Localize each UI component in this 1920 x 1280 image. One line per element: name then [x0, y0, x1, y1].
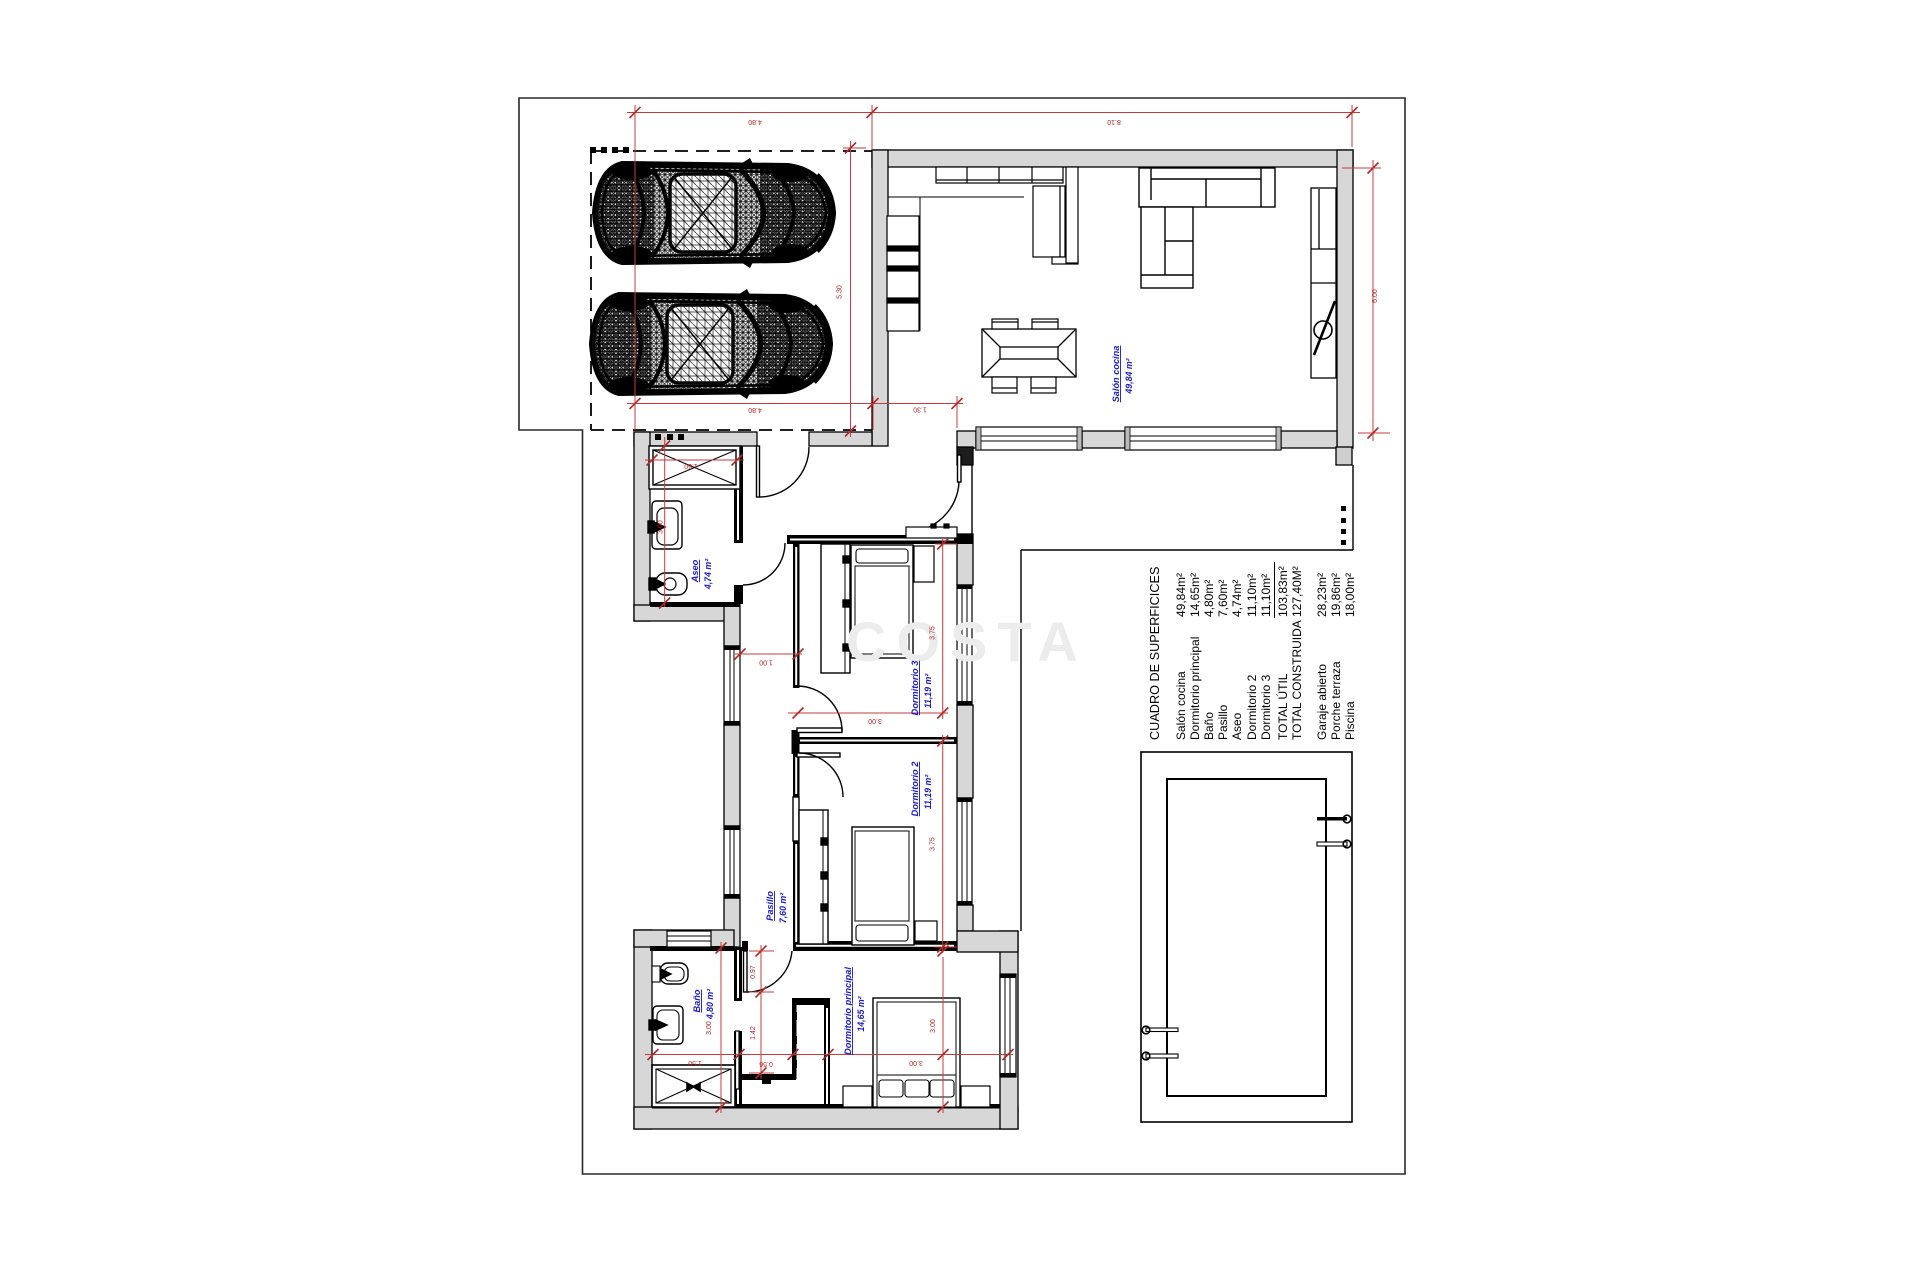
svg-text:7,60m²: 7,60m²: [1216, 580, 1230, 617]
svg-text:14,65m²: 14,65m²: [1188, 573, 1202, 617]
svg-text:11,19 m²: 11,19 m²: [923, 774, 933, 810]
svg-text:TOTAL ÚTIL: TOTAL ÚTIL: [1275, 673, 1290, 740]
svg-text:6.00: 6.00: [1372, 289, 1379, 303]
svg-text:4,80 m²: 4,80 m²: [705, 988, 715, 1020]
svg-text:11,10m²: 11,10m²: [1259, 574, 1273, 617]
svg-text:3.75: 3.75: [930, 837, 937, 851]
svg-text:COSTA: COSTA: [846, 610, 1088, 673]
svg-text:127,40M²: 127,40M²: [1290, 566, 1304, 617]
svg-text:1.50: 1.50: [688, 1059, 702, 1066]
svg-text:Baño: Baño: [692, 989, 702, 1012]
svg-text:TOTAL CONSTRUIDA: TOTAL CONSTRUIDA: [1290, 620, 1304, 740]
svg-text:7,60 m²: 7,60 m²: [778, 892, 788, 923]
svg-text:Baño: Baño: [1202, 712, 1216, 740]
svg-text:Pasillo: Pasillo: [765, 891, 775, 921]
svg-text:Aseo: Aseo: [690, 559, 700, 583]
svg-text:0.56: 0.56: [759, 1060, 773, 1067]
svg-text:3.00: 3.00: [658, 520, 665, 534]
svg-text:Dormitorio principal: Dormitorio principal: [1188, 637, 1202, 740]
svg-text:Garaje abierto: Garaje abierto: [1315, 664, 1329, 740]
svg-text:Piscina: Piscina: [1343, 701, 1357, 740]
svg-text:Dormitorio 3: Dormitorio 3: [910, 661, 920, 716]
svg-text:103,83m²: 103,83m²: [1276, 566, 1290, 617]
svg-text:4,74m²: 4,74m²: [1230, 580, 1244, 617]
svg-text:CUADRO DE SUPERFICICES: CUADRO DE SUPERFICICES: [1148, 567, 1162, 740]
svg-text:3.00: 3.00: [930, 1019, 937, 1033]
svg-text:18,00m²: 18,00m²: [1343, 573, 1357, 617]
svg-text:8.10: 8.10: [1107, 118, 1121, 125]
svg-text:49,84 m²: 49,84 m²: [1124, 357, 1134, 394]
svg-text:3.00: 3.00: [868, 717, 882, 724]
svg-text:4.80: 4.80: [748, 118, 762, 125]
svg-text:Pasillo: Pasillo: [1216, 704, 1230, 740]
svg-text:3.00: 3.00: [909, 1059, 923, 1066]
svg-text:1.42: 1.42: [750, 1026, 757, 1040]
svg-text:4.80: 4.80: [748, 406, 762, 413]
svg-text:Salón cocina: Salón cocina: [1111, 346, 1121, 403]
svg-text:Dormitorio principal: Dormitorio principal: [843, 967, 853, 1055]
svg-text:3.00: 3.00: [706, 1021, 713, 1035]
svg-text:Salón cocina: Salón cocina: [1174, 671, 1188, 740]
svg-text:Dormitorio 3: Dormitorio 3: [1259, 674, 1273, 740]
svg-text:Porche terraza: Porche terraza: [1329, 661, 1343, 740]
svg-text:Dormitorio 2: Dormitorio 2: [1245, 674, 1259, 740]
svg-text:Aseo: Aseo: [1230, 712, 1244, 740]
svg-text:5.30: 5.30: [837, 285, 844, 299]
svg-text:14,65 m²: 14,65 m²: [856, 995, 866, 1031]
svg-text:28,23m²: 28,23m²: [1315, 573, 1329, 617]
svg-text:49,84m²: 49,84m²: [1174, 573, 1188, 617]
svg-text:19,86m²: 19,86m²: [1329, 573, 1343, 617]
svg-text:1.00: 1.00: [759, 659, 773, 666]
svg-text:11,19 m²: 11,19 m²: [923, 673, 933, 709]
svg-text:1.50: 1.50: [684, 462, 698, 469]
svg-text:11,10m²: 11,10m²: [1245, 574, 1259, 617]
svg-text:Dormitorio 2: Dormitorio 2: [910, 761, 920, 817]
svg-text:0.97: 0.97: [750, 965, 757, 979]
svg-text:4,80m²: 4,80m²: [1202, 580, 1216, 617]
svg-text:4,74 m²: 4,74 m²: [703, 558, 713, 590]
svg-text:1.30: 1.30: [913, 406, 927, 413]
svg-text:3.75: 3.75: [930, 626, 937, 640]
